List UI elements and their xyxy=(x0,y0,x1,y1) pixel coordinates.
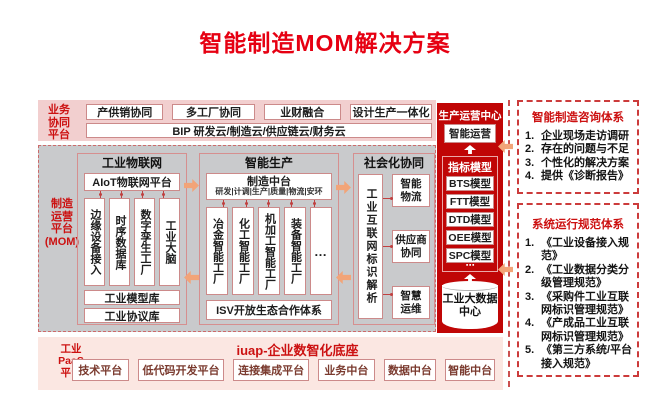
standards-panel-title: 系统运行规范体系 xyxy=(519,216,637,232)
item-text: 《采购件工业互联网标识管理规范》 xyxy=(541,291,633,318)
business-box-design-production: 设计生产一体化 xyxy=(350,104,432,120)
social-panel-title: 社会化协同 xyxy=(358,156,430,171)
identifier-resolution-box: 工业互联网标识解析 xyxy=(358,174,383,319)
paas-box-business-hub: 业务中台 xyxy=(318,359,375,381)
up-arrow-icon xyxy=(464,145,476,154)
operation-center-title: 生产运营中心 xyxy=(437,103,503,123)
connector-tick xyxy=(163,191,164,198)
connector-tick xyxy=(268,200,269,207)
smart-logistics-box: 智能 物流 xyxy=(392,174,430,207)
iot-connectors xyxy=(84,191,180,198)
consulting-list: 1. 企业现场走访调研 2. 存在的问题与不足 3. 个性化的解决方案 4. 提… xyxy=(525,130,633,184)
iuap-foundation-title: iuap-企业数智化底座 xyxy=(98,340,497,359)
paas-box-lowcode: 低代码开发平台 xyxy=(138,359,225,381)
business-box-supply-chain: 产供销协同 xyxy=(86,104,163,120)
list-item: 2. 存在的问题与不足 xyxy=(525,143,633,156)
iot-col-timeseries-db: 时序数据库 xyxy=(109,198,130,286)
connector-line xyxy=(383,198,392,199)
production-panel: 智能生产 制造中台 研发|计调|生产|质量|物流|安环 冶金智能工厂 化工智能工… xyxy=(199,153,339,325)
connector-tick xyxy=(121,191,122,198)
operation-center-column: 生产运营中心 智能运营 指标模型 BTS模型 FTT模型 DTD模型 OEE模型… xyxy=(437,103,503,333)
item-text: 《工业设备接入规范》 xyxy=(541,237,633,264)
item-number: 2. xyxy=(525,143,541,156)
social-panel: 社会化协同 工业互联网标识解析 智能 物流 供应商 协同 智慧 运维 xyxy=(353,153,435,325)
item-text: 存在的问题与不足 xyxy=(541,143,633,156)
bip-row: BIP 研发云/制造云/供应链云/财务云 xyxy=(86,123,432,138)
big-data-center-cylinder: 工业大数据中心 xyxy=(442,285,498,329)
factory-col-more: … xyxy=(310,207,332,295)
kpi-model-group: 指标模型 BTS模型 FTT模型 DTD模型 OEE模型 SPC模型 ⋯ xyxy=(442,156,498,272)
list-item: 4. 《产成品工业互联网标识管理规范》 xyxy=(525,317,633,344)
standards-list: 1. 《工业设备接入规范》 2. 《工业数据分类分级管理规范》 3. 《采购件工… xyxy=(525,237,633,371)
paas-box-integration: 连接集成平台 xyxy=(233,359,309,381)
connector-tick xyxy=(246,200,247,207)
item-number: 4. xyxy=(525,170,541,183)
list-item: 3. 个性化的解决方案 xyxy=(525,157,633,170)
paas-box-row: 技术平台 低代码开发平台 连接集成平台 业务中台 数据中台 智能中台 xyxy=(72,359,495,381)
business-box-row: 产供销协同 多工厂协同 业财融合 设计生产一体化 xyxy=(86,104,432,120)
paas-box-data-hub: 数据中台 xyxy=(384,359,437,381)
business-layer-band: 业务协同平台 产供销协同 多工厂协同 业财融合 设计生产一体化 BIP 研发云/… xyxy=(38,100,436,141)
kpi-model-dtd: DTD模型 xyxy=(446,212,494,227)
item-text: 提供《诊断报告》 xyxy=(541,170,633,183)
list-item: 5. 《第三方系统/平台接入规范》 xyxy=(525,344,633,371)
isv-ecosystem-box: ISV开放生态合作体系 xyxy=(206,300,332,320)
industrial-model-library-box: 工业模型库 xyxy=(84,290,180,305)
manufacturing-hub-domains: 研发|计调|生产|质量|物流|安环 xyxy=(215,188,322,197)
iot-col-digital-twin: 数字孪生工厂 xyxy=(134,198,155,286)
list-item: 1. 企业现场走访调研 xyxy=(525,130,633,143)
iot-panel: 工业物联网 AIoT物联网平台 边缘设备接入 时序数据库 数字孪生工厂 工业大脑… xyxy=(77,153,187,325)
item-number: 1. xyxy=(525,130,541,143)
item-text: 《第三方系统/平台接入规范》 xyxy=(541,344,633,371)
aiot-platform-box: AIoT物联网平台 xyxy=(84,173,180,191)
supplier-collab-box: 供应商 协同 xyxy=(392,230,430,263)
item-number: 4. xyxy=(525,317,541,344)
iot-columns: 边缘设备接入 时序数据库 数字孪生工厂 工业大脑 xyxy=(84,198,180,286)
kpi-more-dots: ⋯ xyxy=(446,263,494,270)
list-item: 4. 提供《诊断报告》 xyxy=(525,170,633,183)
list-item: 2. 《工业数据分类分级管理规范》 xyxy=(525,264,633,291)
item-text: 个性化的解决方案 xyxy=(541,157,633,170)
kpi-group-title: 指标模型 xyxy=(446,159,494,173)
kpi-model-bts: BTS模型 xyxy=(446,176,494,191)
business-box-finance: 业财融合 xyxy=(264,104,341,120)
business-box-multi-plant: 多工厂协同 xyxy=(172,104,254,120)
standards-panel: 系统运行规范体系 1. 《工业设备接入规范》 2. 《工业数据分类分级管理规范》… xyxy=(517,203,639,377)
item-number: 2. xyxy=(525,264,541,291)
paas-box-tech-platform: 技术平台 xyxy=(72,359,129,381)
kpi-model-ftt: FTT模型 xyxy=(446,194,494,209)
item-number: 1. xyxy=(525,237,541,264)
iot-col-industrial-brain: 工业大脑 xyxy=(159,198,180,286)
iot-panel-title: 工业物联网 xyxy=(84,156,180,171)
factory-columns: 冶金智能工厂 化工智能工厂 机加工智能工厂 装备智能工厂 … xyxy=(206,207,332,295)
connector-line xyxy=(383,294,392,295)
item-text: 《工业数据分类分级管理规范》 xyxy=(541,264,633,291)
big-data-center-label: 工业大数据中心 xyxy=(442,285,498,319)
consulting-panel: 智能制造咨询体系 1. 企业现场走访调研 2. 存在的问题与不足 3. 个性化的… xyxy=(517,100,639,194)
page-title: 智能制造MOM解决方案 xyxy=(0,24,650,58)
factory-col-machining: 机加工智能工厂 xyxy=(258,207,280,295)
consulting-panel-title: 智能制造咨询体系 xyxy=(519,109,637,125)
smart-operation-box: 智能运营 xyxy=(444,124,496,143)
paas-layer-band: 工业 PaaS 平台 iuap-企业数智化底座 技术平台 低代码开发平台 连接集… xyxy=(38,337,503,390)
production-panel-title: 智能生产 xyxy=(206,156,332,171)
social-connectors xyxy=(383,174,392,319)
production-connectors xyxy=(206,200,332,207)
factory-col-chemical: 化工智能工厂 xyxy=(232,207,254,295)
smart-maintenance-box: 智慧 运维 xyxy=(392,286,430,319)
manufacturing-hub-box: 制造中台 研发|计调|生产|质量|物流|安环 xyxy=(206,173,332,200)
industrial-protocol-library-box: 工业协议库 xyxy=(84,308,180,323)
connector-line xyxy=(383,246,392,247)
connector-tick xyxy=(142,191,143,198)
mom-layer-label: 制造 运营 平台 (MOM) xyxy=(42,198,82,249)
connector-tick xyxy=(223,200,224,207)
mom-layer-band: 制造 运营 平台 (MOM) 工业物联网 AIoT物联网平台 边缘设备接入 时序… xyxy=(38,145,436,332)
item-number: 3. xyxy=(525,157,541,170)
iot-col-edge-access: 边缘设备接入 xyxy=(84,198,105,286)
item-text: 《产成品工业互联网标识管理规范》 xyxy=(541,317,633,344)
connector-tick xyxy=(314,200,315,207)
list-item: 1. 《工业设备接入规范》 xyxy=(525,237,633,264)
social-body: 工业互联网标识解析 智能 物流 供应商 协同 智慧 运维 xyxy=(358,174,430,319)
kpi-model-oee: OEE模型 xyxy=(446,230,494,245)
dashed-separator xyxy=(508,100,510,387)
connector-tick xyxy=(100,191,101,198)
paas-box-ai-hub: 智能中台 xyxy=(445,359,495,381)
item-number: 3. xyxy=(525,291,541,318)
list-item: 3. 《采购件工业互联网标识管理规范》 xyxy=(525,291,633,318)
bip-clouds-box: BIP 研发云/制造云/供应链云/财务云 xyxy=(86,123,432,138)
item-text: 企业现场走访调研 xyxy=(541,130,633,143)
slide-canvas: 智能制造MOM解决方案 业务协同平台 产供销协同 多工厂协同 业财融合 设计生产… xyxy=(0,0,650,417)
business-layer-label: 业务协同平台 xyxy=(46,104,72,142)
social-items: 智能 物流 供应商 协同 智慧 运维 xyxy=(392,174,430,319)
factory-col-metallurgy: 冶金智能工厂 xyxy=(206,207,228,295)
item-number: 5. xyxy=(525,344,541,371)
factory-col-equipment: 装备智能工厂 xyxy=(284,207,306,295)
connector-tick xyxy=(291,200,292,207)
